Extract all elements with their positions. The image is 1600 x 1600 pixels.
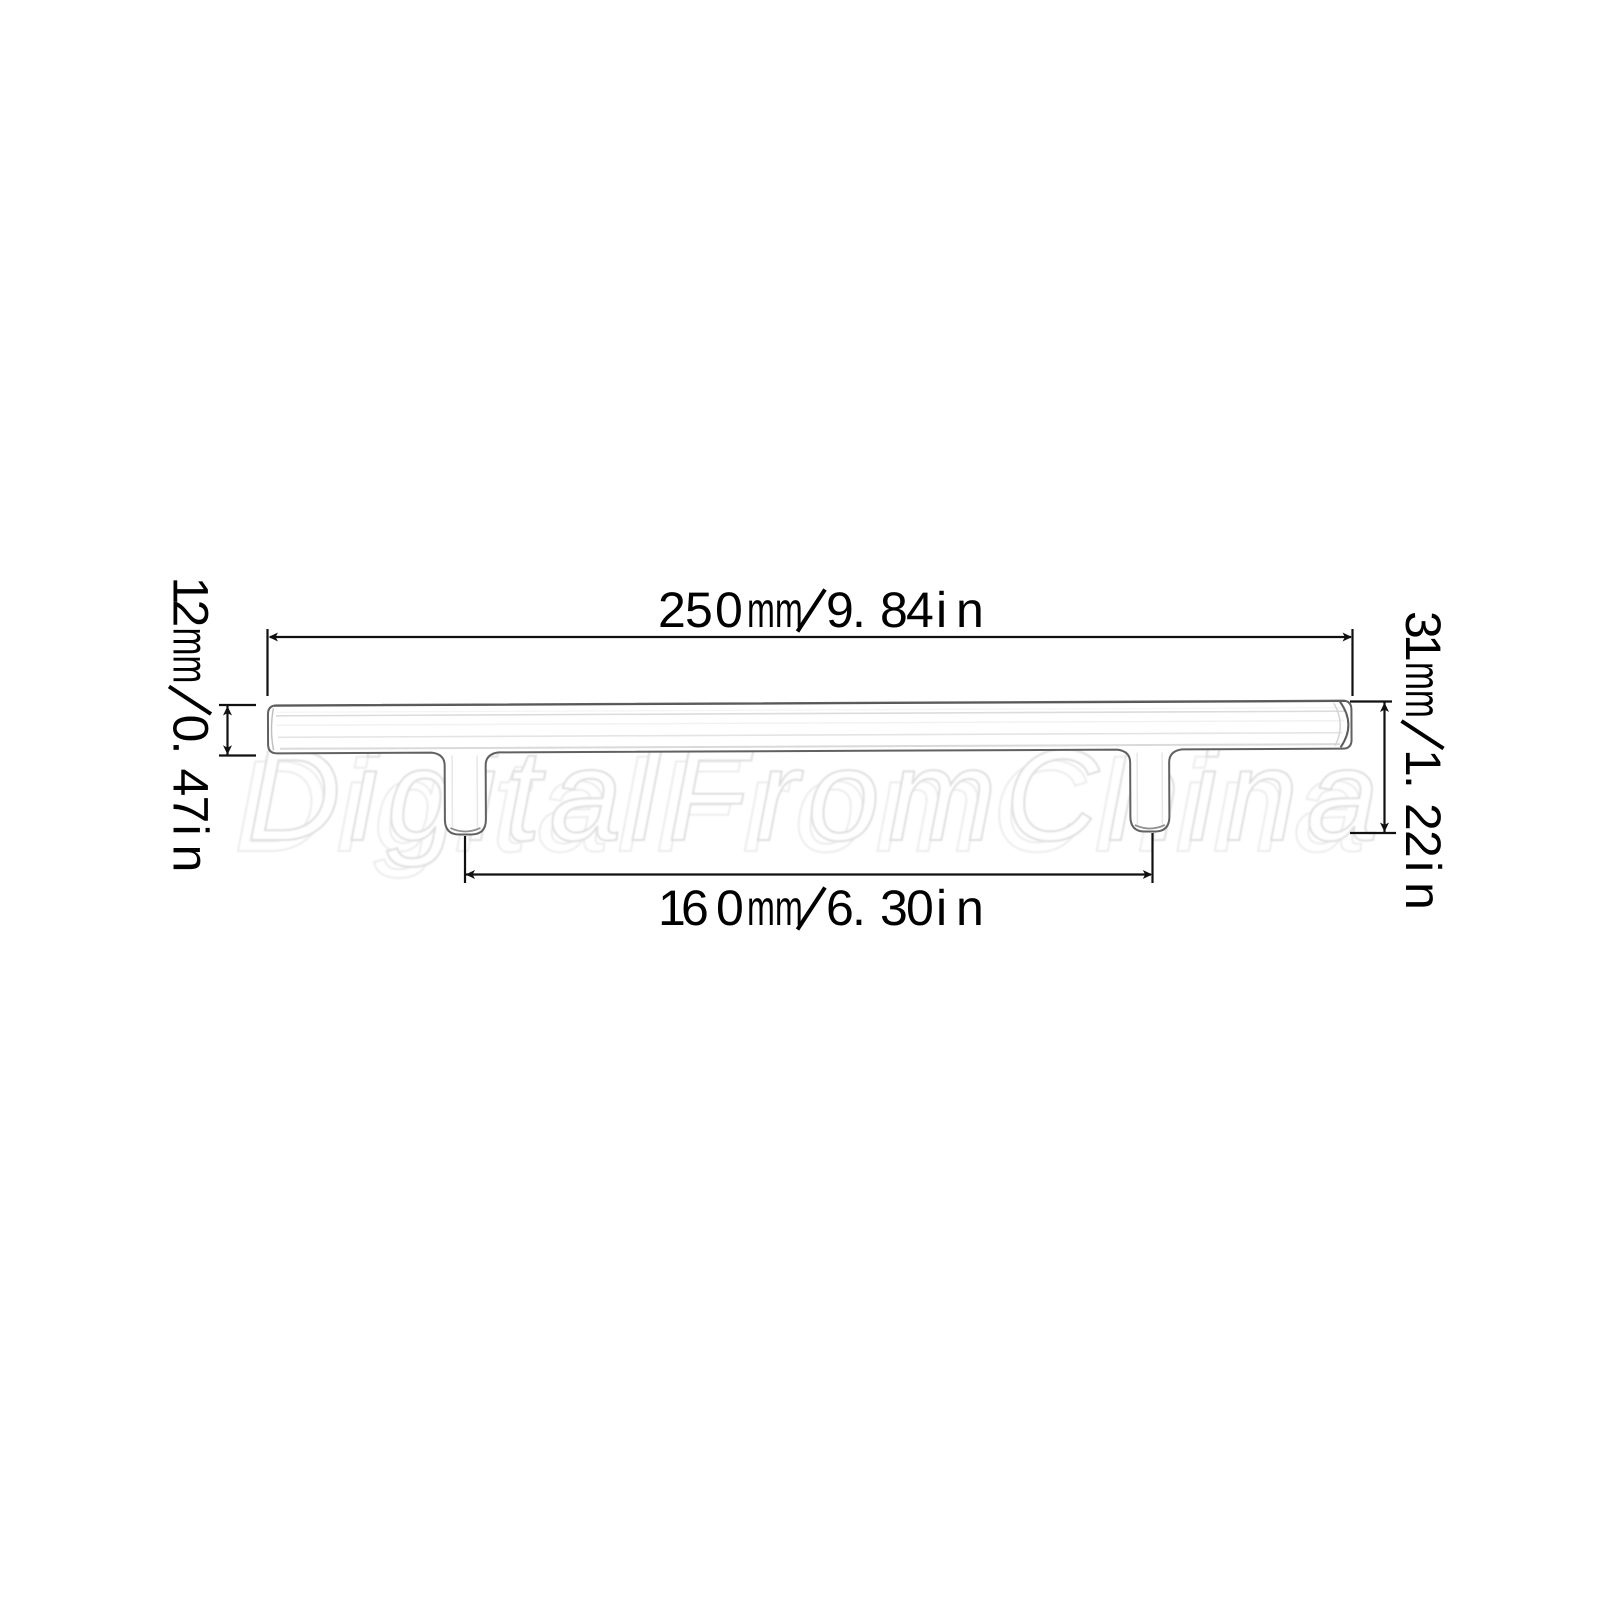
- svg-text:311.22in: 311.22in: [1395, 611, 1451, 910]
- svg-text:120.47in: 120.47in: [163, 577, 219, 873]
